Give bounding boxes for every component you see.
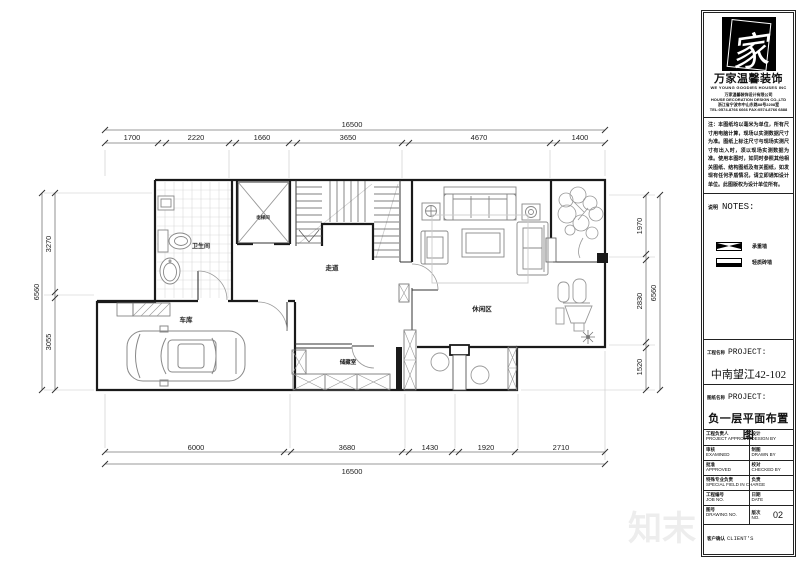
table-row: 工程负责人PROJECT APPROVER 设计DESIGN BY: [704, 430, 793, 446]
notes-header: 说明NOTES:: [708, 196, 789, 214]
storage-cabinets: [292, 350, 390, 390]
drawing-name-section: 图纸名称PROJECT: 负一层平面布置图: [704, 384, 793, 429]
column-body: [453, 355, 466, 390]
legend-item: 承重墙: [716, 242, 789, 251]
cell-label-en: DRAWING NO.: [706, 512, 747, 518]
dim-top-6: 1400: [572, 133, 589, 142]
company-tagline: WE YOUNG GOODIES HOUSES INC: [704, 85, 793, 90]
notes-section: 说明NOTES: 承重墙 轻质砖墙: [704, 193, 793, 339]
dim-top-2: 2220: [188, 133, 205, 142]
project-label-en: PROJECT:: [728, 348, 766, 357]
dimension-texts: 16500 1700 2220 1660 3650 4670 1400 6000…: [32, 120, 658, 476]
cad-floorplan-page: { "plan": { "rooms": { "bathroom": "卫生间"…: [0, 0, 800, 565]
column-cap: [450, 345, 469, 355]
dim-top-4: 3650: [340, 133, 357, 142]
room-labels: 卫生间 电梯间 走道 车库 储藏室 休闲区: [180, 214, 493, 366]
cell-label-en: SPECIAL FIELD IN CHARGE: [706, 482, 747, 488]
version-cell: 版次NO. 02: [749, 506, 794, 524]
watermark-text: 知末: [628, 510, 696, 548]
dim-bottom-5: 2710: [553, 443, 570, 452]
floor-plan: 知末: [0, 0, 700, 565]
table-cell: 日期DATE: [749, 491, 794, 505]
table-cell: 工程编号JOB NO.: [704, 491, 749, 505]
dim-bottom-4: 1920: [478, 443, 495, 452]
toilet: [158, 230, 168, 252]
project-header: 工程名称PROJECT:: [704, 340, 793, 359]
drawing-header: 图纸名称PROJECT:: [704, 385, 793, 404]
client-label-en: CLIENT'S: [727, 535, 753, 542]
table-cell: 批准APPROVED: [704, 461, 749, 475]
dim-right-3: 1520: [635, 359, 644, 376]
load-bearing-wall-symbol-icon: [716, 242, 742, 251]
stair-construction-lines: [298, 184, 398, 258]
car: [127, 326, 245, 386]
table-cell: 特殊专业负责SPECIAL FIELD IN CHARGE: [704, 476, 749, 490]
dim-bottom-3: 1430: [422, 443, 439, 452]
table-row: 批准APPROVED 校对CHECKED BY: [704, 461, 793, 476]
dim-top-5: 4670: [471, 133, 488, 142]
dim-left-total: 6560: [32, 284, 41, 301]
room-label-elevator: 电梯间: [256, 214, 270, 221]
cell-label-en: EXAMINED: [706, 452, 747, 458]
drawing-label-zh: 图纸名称: [707, 395, 725, 400]
cell-label-en: PROJECT APPROVER: [706, 436, 747, 442]
project-name: 中南望江42-102: [704, 366, 793, 382]
dim-left-2: 3055: [44, 334, 53, 351]
company-logo-section: 家 万家温馨装饰 WE YOUNG GOODIES HOUSES INC 万家温…: [704, 13, 793, 117]
client-label-zh: 客户确认: [707, 536, 725, 541]
client-confirm-row: 客户确认CLIENT'S: [704, 525, 793, 554]
logo-calligraphy-glyph: 家: [722, 18, 776, 71]
table-row: 审核EXAMINED 制图DRAWN BY: [704, 446, 793, 461]
dim-bottom-total: 16500: [342, 467, 363, 476]
dim-bottom-1: 6000: [188, 443, 205, 452]
company-info: 万家温馨装饰设计有限公司 HOUSE DECORATION DESIGN CO.…: [704, 92, 793, 112]
loveseat-right: [517, 222, 548, 275]
sofa-set: [421, 187, 548, 283]
room-label-garage: 车库: [180, 315, 194, 324]
project-name-section: 工程名称PROJECT: 中南望江42-102: [704, 339, 793, 384]
title-block-inner-border: 家 万家温馨装饰 WE YOUNG GOODIES HOUSES INC 万家温…: [703, 12, 794, 555]
disclaimer-section: 注：本图纸均以毫米为单位，所有尺寸用电脑计算，现场以实测数据尺寸为准。图纸上标注…: [704, 117, 793, 193]
legend-label: 轻质砖墙: [752, 259, 772, 266]
corner-column: [597, 253, 608, 263]
room-label-corridor: 走道: [325, 263, 340, 272]
legend: 承重墙 轻质砖墙: [708, 242, 789, 267]
staircase: [296, 181, 399, 257]
approval-table: 工程负责人PROJECT APPROVER 设计DESIGN BY 审核EXAM…: [704, 429, 793, 554]
company-logo-icon: 家: [722, 17, 776, 71]
room-label-bathroom: 卫生间: [192, 242, 210, 250]
cell-label-en: DESIGN BY: [752, 436, 792, 442]
project-label-zh: 工程名称: [707, 350, 725, 355]
rug: [432, 215, 528, 283]
cell-label-en: DATE: [752, 497, 792, 503]
cell-label-en: DRAWN BY: [752, 452, 792, 458]
brick-wall-symbol-icon: [716, 258, 742, 267]
legend-label: 承重墙: [752, 243, 767, 250]
exercise-machine: [556, 279, 592, 331]
column-and-stools: [431, 345, 489, 390]
table-cell: 校对CHECKED BY: [749, 461, 794, 475]
cell-label-en: JOB NO.: [706, 497, 747, 503]
dim-bottom-2: 3680: [339, 443, 356, 452]
table-cell: 制图DRAWN BY: [749, 446, 794, 460]
dim-right-total: 6560: [649, 285, 658, 302]
stool: [471, 366, 489, 384]
cell-label-en: CHECKED BY: [752, 467, 792, 473]
notes-label-zh: 说明: [708, 205, 718, 211]
table-row: 工程编号JOB NO. 日期DATE: [704, 491, 793, 506]
extension-lines: [44, 150, 655, 460]
company-name: 万家温馨装饰: [704, 73, 793, 85]
watermark: 知末: [628, 510, 696, 548]
legend-item: 轻质砖墙: [716, 258, 789, 267]
title-block-panel: 家 万家温馨装饰 WE YOUNG GOODIES HOUSES INC 万家温…: [701, 10, 796, 557]
storage-wall-pier: [396, 347, 402, 390]
cell-label-en: NO.: [752, 515, 761, 521]
drawing-no-cell: 图号DRAWING NO.: [704, 506, 749, 524]
company-info-line: TEL:0574-8766 6666 FAX:0574-8766 6888: [704, 107, 793, 112]
room-label-leisure: 休闲区: [471, 304, 492, 313]
dim-right-2: 2830: [635, 293, 644, 310]
version-number: 02: [773, 510, 791, 520]
table-row: 图号DRAWING NO. 版次NO. 02: [704, 506, 793, 525]
dim-right-1: 1970: [635, 218, 644, 235]
dim-top-3: 1660: [254, 133, 271, 142]
room-label-storage: 储藏室: [339, 358, 357, 366]
plant: [558, 187, 603, 258]
disclaimer-text: 注：本图纸均以毫米为单位，所有尺寸用电脑计算，现场以实测数据尺寸为准。图纸上标注…: [708, 121, 789, 189]
table-cell: 设计DESIGN BY: [749, 430, 794, 445]
garage-ramp: [117, 303, 170, 316]
table-cell: 审核EXAMINED: [704, 446, 749, 460]
dim-left-1: 3270: [44, 236, 53, 253]
table-row: 特殊专业负责SPECIAL FIELD IN CHARGE 负责: [704, 476, 793, 491]
drawing-label-en: PROJECT:: [728, 393, 766, 402]
dim-top-1: 1700: [124, 133, 141, 142]
table-cell: 负责: [749, 476, 794, 490]
dim-top-total: 16500: [342, 120, 363, 129]
cell-label-zh: 负责: [752, 477, 792, 482]
table-cell: 工程负责人PROJECT APPROVER: [704, 430, 749, 445]
notes-label-en: NOTES:: [722, 202, 754, 212]
elevator-x-icon: [238, 182, 289, 243]
cell-label-en: APPROVED: [706, 467, 747, 473]
stool: [431, 353, 449, 371]
flower-icon: [581, 330, 595, 344]
